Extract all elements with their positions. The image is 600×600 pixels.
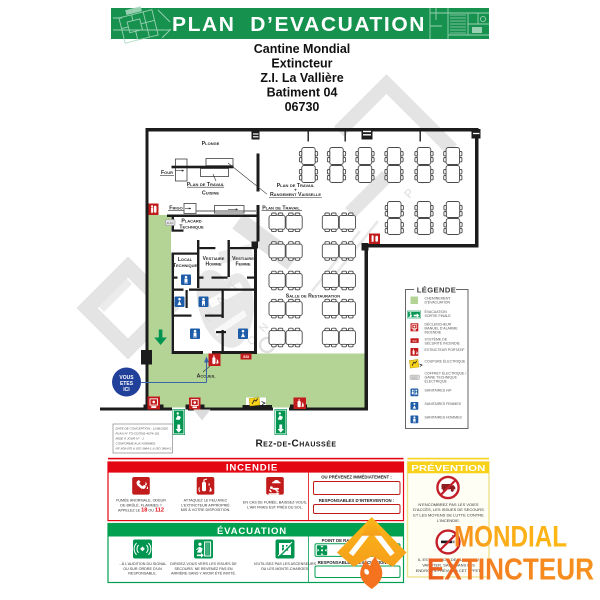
svg-text:Batiment 04: Batiment 04 xyxy=(267,86,338,100)
svg-text:N’UTILISEZ PAS LES ASCENSEURS: N’UTILISEZ PAS LES ASCENSEURS xyxy=(254,562,317,566)
svg-text:MONDIAL: MONDIAL xyxy=(454,521,567,554)
svg-text:MISE À JOUR N° : 1: MISE À JOUR N° : 1 xyxy=(116,436,145,440)
svg-text:Salle de Restauration: Salle de Restauration xyxy=(286,294,340,300)
svg-text:L’AIR FRAIS EST PRÈS DU SOL.: L’AIR FRAIS EST PRÈS DU SOL. xyxy=(247,504,303,509)
svg-text:Extincteur: Extincteur xyxy=(271,57,332,71)
svg-text:DATE DE CONCEPTION : 11/06/202: DATE DE CONCEPTION : 11/06/2020 xyxy=(116,426,169,430)
svg-text:Cantine Mondial: Cantine Mondial xyxy=(254,42,351,56)
svg-text:D’ÉVACUATION: D’ÉVACUATION xyxy=(425,300,451,305)
svg-text:SANITAIRES HOMMES: SANITAIRES HOMMES xyxy=(425,416,463,420)
svg-text:ET LES MOYENS DE LUTTE CONTRE: ET LES MOYENS DE LUTTE CONTRE xyxy=(413,513,484,518)
svg-text:EXTINCTEUR: EXTINCTEUR xyxy=(427,552,594,587)
svg-text:EXTINCTEUR PORTATIF: EXTINCTEUR PORTATIF xyxy=(425,348,465,352)
svg-text:OU SUR ORDRE D’UN: OU SUR ORDRE D’UN xyxy=(123,567,162,571)
svg-text:ELEC: ELEC xyxy=(412,376,419,379)
svg-text:SSI: SSI xyxy=(413,339,417,343)
svg-text:SÉCURITÉ INCENDIE: SÉCURITÉ INCENDIE xyxy=(425,340,461,345)
svg-text:NF X08-070 & ISO 3864-1 & ISO: NF X08-070 & ISO 3864-1 & ISO 3864-2 xyxy=(116,446,172,450)
svg-text:ATTAQUEZ LE FEU AVEC: ATTAQUEZ LE FEU AVEC xyxy=(184,499,228,503)
svg-text:SORTIE FINALE: SORTIE FINALE xyxy=(425,314,452,318)
svg-text:D’ACCÈS, LES ISSUES DE SECOURS: D’ACCÈS, LES ISSUES DE SECOURS xyxy=(413,507,484,512)
svg-text:SANITAIRES FEMMES: SANITAIRES FEMMES xyxy=(425,402,462,406)
svg-text:LÉGENDE: LÉGENDE xyxy=(417,286,457,295)
svg-text:L’EXTINCTEUR APPROPRIÉ: L’EXTINCTEUR APPROPRIÉ xyxy=(181,502,230,507)
svg-text:COUPURE ÉLECTRIQUE: COUPURE ÉLECTRIQUE xyxy=(425,359,467,364)
svg-text:PLAN N° TO-CD7001-4074-101: PLAN N° TO-CD7001-4074-101 xyxy=(116,431,160,435)
svg-text:Technique: Technique xyxy=(179,225,204,231)
svg-text:ÉVACUATION: ÉVACUATION xyxy=(217,525,287,537)
svg-text:Cuisine: Cuisine xyxy=(202,191,220,197)
svg-text:Plonge: Plonge xyxy=(202,141,220,147)
svg-text:ÉLECTRIQUE: ÉLECTRIQUE xyxy=(425,379,448,384)
svg-text:OU PRÉVENEZ IMMÉDIATEMENT :: OU PRÉVENEZ IMMÉDIATEMENT : xyxy=(321,475,392,480)
svg-text:SECOURS. NE REVENEZ PAS EN: SECOURS. NE REVENEZ PAS EN xyxy=(174,567,232,571)
svg-text:Z.I. La Vallière: Z.I. La Vallière xyxy=(260,71,343,85)
svg-text:PLAN D’EVACUATION: PLAN D’EVACUATION xyxy=(172,14,426,36)
svg-text:EN CAS DE FUMÉE, BAISSEZ-VOUS,: EN CAS DE FUMÉE, BAISSEZ-VOUS, xyxy=(243,500,307,505)
svg-text:DIRIGEZ-VOUS VERS LES ISSUES D: DIRIGEZ-VOUS VERS LES ISSUES DE xyxy=(170,562,237,566)
svg-text:ICI: ICI xyxy=(123,387,130,393)
svg-text:DE BRÛLÉ, FLAMMES ?: DE BRÛLÉ, FLAMMES ? xyxy=(120,502,161,507)
svg-text:Homme: Homme xyxy=(205,262,221,268)
svg-text:INCENDIE: INCENDIE xyxy=(226,463,278,474)
svg-text:PRÉVENTION: PRÉVENTION xyxy=(411,463,485,473)
svg-text:OU LES MONTE-CHARGES.: OU LES MONTE-CHARGES. xyxy=(261,567,309,571)
svg-text:ELEC: ELEC xyxy=(167,221,174,225)
svg-text:SANITAIRES H/F: SANITAIRES H/F xyxy=(425,389,452,393)
svg-text:RESPONSABLE.: RESPONSABLE. xyxy=(128,572,157,576)
svg-text:Technique: Technique xyxy=(173,263,198,269)
svg-text:SSI: SSI xyxy=(243,355,249,359)
svg-text:CONFORME AUX NORMES:: CONFORME AUX NORMES: xyxy=(116,441,157,445)
svg-text:Rez-de-Chaussée: Rez-de-Chaussée xyxy=(255,439,336,450)
svg-text:FUMÉE ANORMALE, ODEUR: FUMÉE ANORMALE, ODEUR xyxy=(116,498,166,503)
svg-text:INCENDIE: INCENDIE xyxy=(425,331,442,335)
svg-text:Femme: Femme xyxy=(235,262,250,268)
svg-text:MIS À VOTRE DISPOSITION.: MIS À VOTRE DISPOSITION. xyxy=(181,508,231,512)
svg-text:ARRIÈRE SANS Y AVOIR ÉTÉ INVIT: ARRIÈRE SANS Y AVOIR ÉTÉ INVITÉ. xyxy=(171,571,236,576)
svg-text:06730: 06730 xyxy=(285,100,320,114)
svg-text:N’ENCOMBREZ PAS LES VOIES: N’ENCOMBREZ PAS LES VOIES xyxy=(418,502,478,507)
svg-text:...À L’AUDITION DU SIGNAL: ...À L’AUDITION DU SIGNAL xyxy=(119,562,167,566)
svg-text:RESPONSABLES D’INTERVENTION :: RESPONSABLES D’INTERVENTION : xyxy=(319,498,395,503)
